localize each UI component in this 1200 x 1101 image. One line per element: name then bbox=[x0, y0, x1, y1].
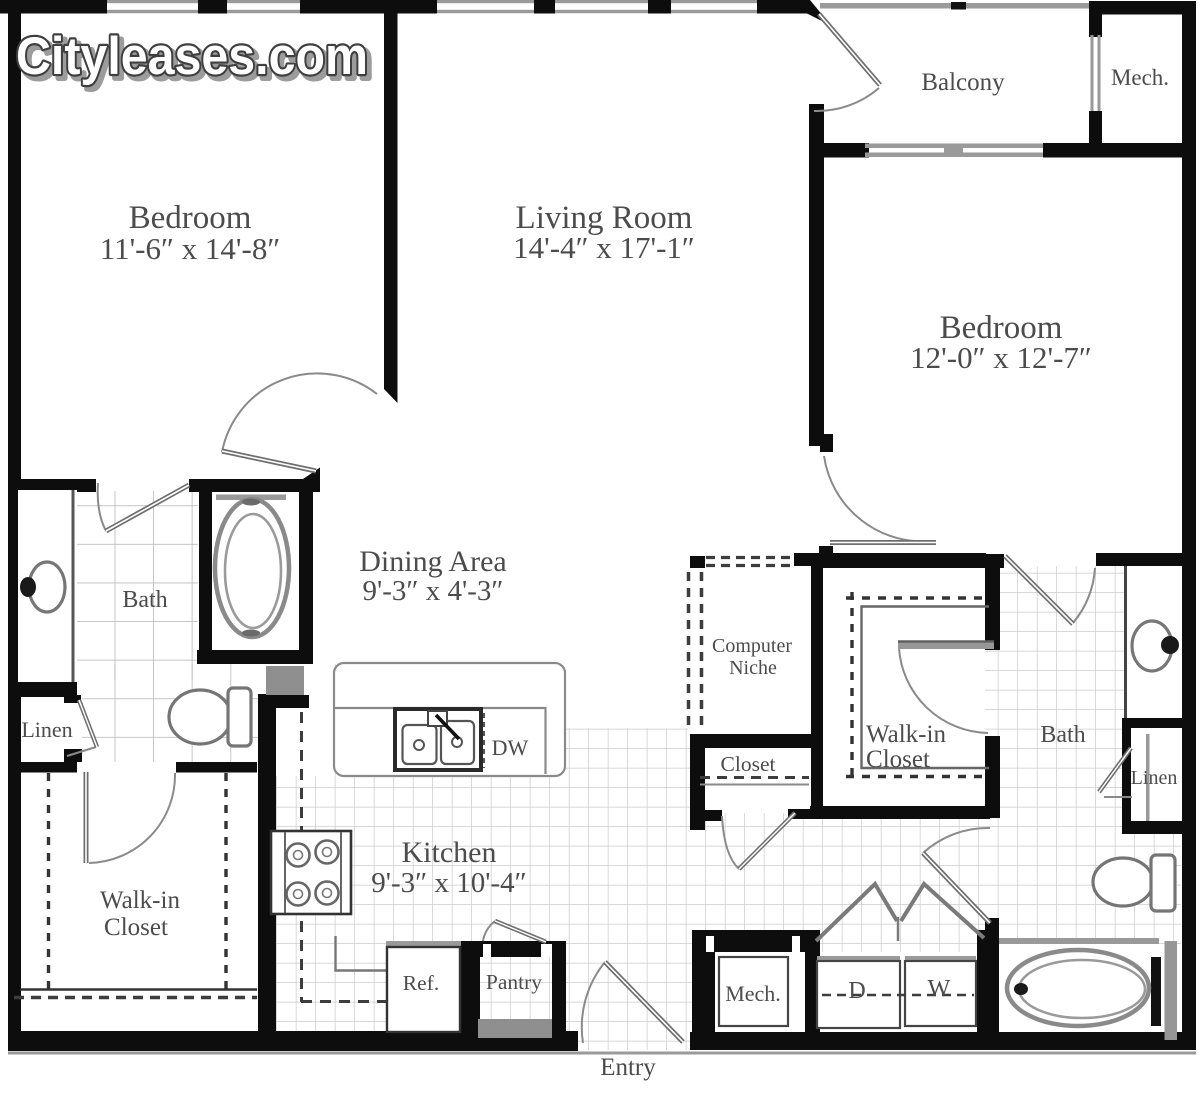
svg-text:Closet: Closet bbox=[721, 752, 776, 776]
svg-text:Ref.: Ref. bbox=[403, 971, 439, 995]
svg-text:9'-3″ x 4'-3″: 9'-3″ x 4'-3″ bbox=[363, 575, 504, 607]
svg-text:Closet: Closet bbox=[104, 914, 168, 941]
svg-text:Cityleases.com: Cityleases.com bbox=[16, 27, 368, 86]
svg-text:D: D bbox=[848, 978, 865, 1004]
svg-text:Bath: Bath bbox=[1040, 722, 1085, 748]
svg-text:W: W bbox=[928, 976, 951, 1002]
svg-text:14'-4″ x 17'-1″: 14'-4″ x 17'-1″ bbox=[513, 230, 695, 265]
svg-text:Niche: Niche bbox=[729, 657, 777, 679]
svg-text:12'-0″ x 12'-7″: 12'-0″ x 12'-7″ bbox=[910, 340, 1092, 375]
svg-text:11'-6″ x 14'-8″: 11'-6″ x 14'-8″ bbox=[100, 231, 281, 266]
svg-text:DW: DW bbox=[492, 735, 529, 760]
svg-text:Entry: Entry bbox=[600, 1054, 656, 1081]
svg-text:Computer: Computer bbox=[712, 635, 792, 657]
svg-text:Mech.: Mech. bbox=[1111, 65, 1169, 90]
svg-text:Linen: Linen bbox=[21, 717, 72, 742]
svg-text:Walk-in: Walk-in bbox=[100, 887, 180, 914]
svg-text:Closet: Closet bbox=[866, 746, 930, 773]
svg-text:Dining Area: Dining Area bbox=[359, 545, 506, 578]
svg-text:Linen: Linen bbox=[1131, 767, 1178, 789]
svg-text:Kitchen: Kitchen bbox=[402, 836, 497, 869]
svg-text:Bath: Bath bbox=[122, 587, 167, 613]
svg-text:Pantry: Pantry bbox=[486, 970, 542, 994]
svg-text:Mech.: Mech. bbox=[725, 981, 781, 1006]
svg-text:Walk-in: Walk-in bbox=[866, 721, 946, 748]
svg-text:9'-3″ x 10'-4″: 9'-3″ x 10'-4″ bbox=[371, 867, 526, 899]
svg-text:Balcony: Balcony bbox=[921, 69, 1005, 96]
